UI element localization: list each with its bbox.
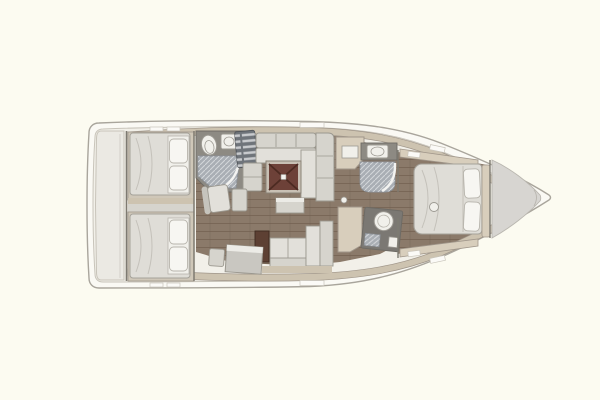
forward-shower (360, 143, 397, 192)
settee-corner-back (316, 133, 334, 201)
aft-cabin-starboard (128, 212, 194, 281)
sofa-back (270, 258, 306, 267)
pillow (170, 166, 188, 190)
sofa-plinth (262, 266, 332, 273)
hull-window (408, 151, 421, 157)
saloon-table (266, 161, 301, 193)
pillow (463, 169, 480, 199)
locker-door (388, 237, 398, 248)
nav-seat (209, 249, 225, 267)
window (167, 283, 180, 287)
floor-plan (0, 0, 600, 400)
shower-grate (360, 162, 395, 192)
yacht-floor-plan-canvas (0, 0, 600, 400)
galley-cabinet-bottom (338, 207, 362, 252)
forward-heads (361, 207, 403, 252)
coachroof-hatch (300, 281, 324, 286)
settee-corner-seat (301, 150, 316, 198)
coffee-table-edge (276, 198, 304, 202)
headboard-shelf (482, 165, 490, 237)
foot-stool (430, 203, 439, 212)
pillow (463, 202, 480, 232)
window (150, 127, 163, 131)
steps-treads (235, 130, 258, 168)
coachroof-hatch (300, 123, 324, 128)
chair-seat (207, 184, 230, 213)
hull-window (408, 250, 421, 256)
companionway-steps (235, 130, 258, 168)
pillow (170, 220, 188, 244)
transom-platform (96, 131, 127, 281)
table-centerpiece (281, 175, 286, 180)
pillow (170, 247, 188, 271)
sofa-chaise-seat (306, 226, 320, 266)
sofa-chaise-back (320, 221, 333, 266)
door-knob (341, 197, 347, 203)
window (150, 283, 163, 287)
ottoman (232, 189, 247, 211)
aft-passage (128, 204, 194, 212)
cabin-wall (128, 198, 194, 204)
grate-hatch (364, 233, 380, 247)
cabinet-door-panel (342, 146, 358, 158)
pillow (170, 139, 188, 163)
aft-cabin-port (128, 132, 194, 204)
window (167, 127, 180, 131)
lounge-chair (201, 183, 231, 214)
settee-back (256, 133, 316, 148)
